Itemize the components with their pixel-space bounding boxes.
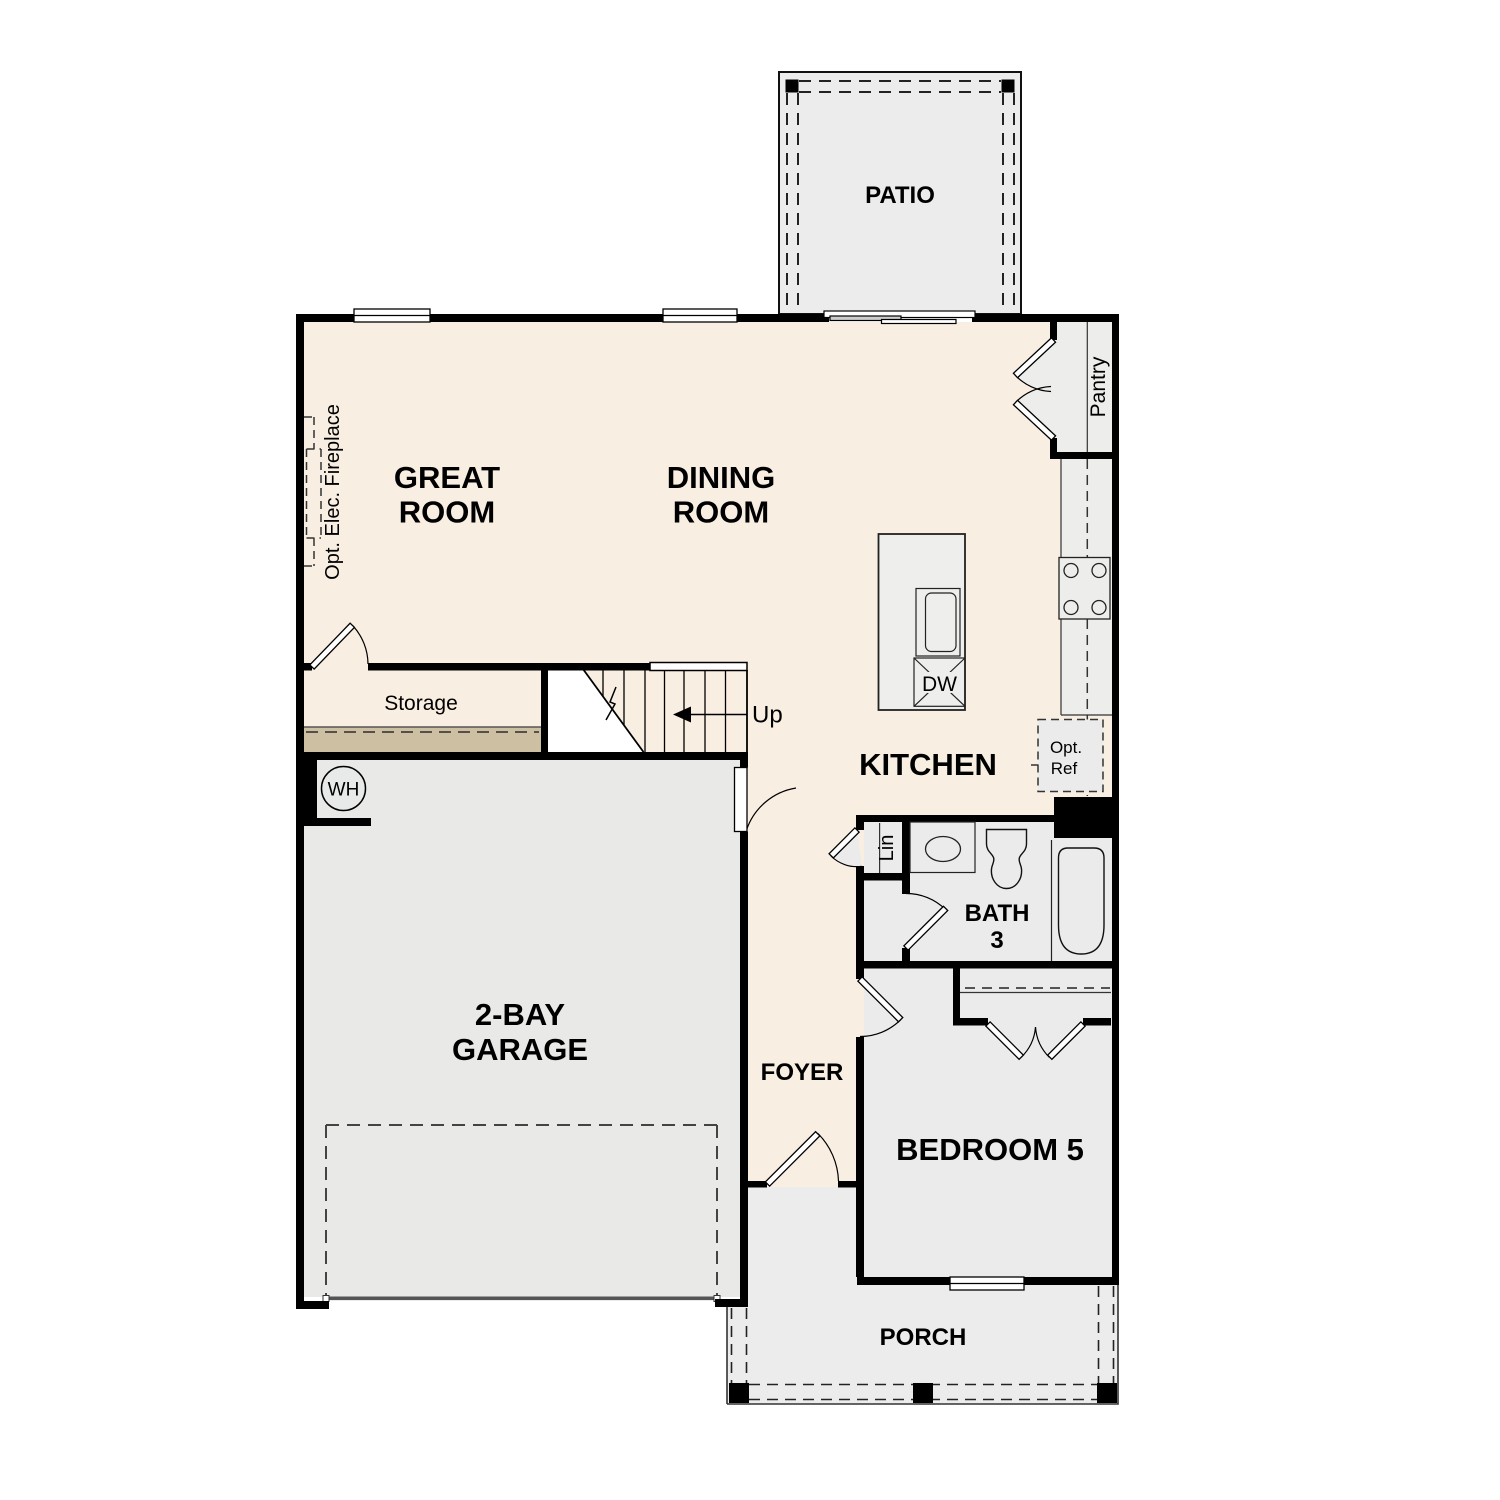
svg-text:Pantry: Pantry	[1087, 356, 1110, 417]
svg-text:Storage: Storage	[384, 692, 458, 715]
svg-text:DINING: DINING	[667, 460, 776, 495]
svg-text:GARAGE: GARAGE	[452, 1032, 588, 1067]
svg-text:Opt.: Opt.	[1050, 738, 1082, 757]
svg-text:FOYER: FOYER	[761, 1059, 844, 1086]
svg-text:3: 3	[990, 927, 1003, 954]
svg-text:Up: Up	[752, 702, 783, 729]
svg-text:PORCH: PORCH	[880, 1324, 967, 1351]
svg-text:BATH: BATH	[965, 900, 1030, 927]
svg-text:GREAT: GREAT	[394, 460, 500, 495]
svg-text:2-BAY: 2-BAY	[475, 997, 565, 1032]
svg-text:ROOM: ROOM	[399, 495, 495, 530]
svg-text:Opt. Elec. Fireplace: Opt. Elec. Fireplace	[322, 404, 344, 580]
svg-text:Lin: Lin	[876, 835, 898, 862]
svg-text:BEDROOM 5: BEDROOM 5	[896, 1132, 1084, 1167]
svg-text:DW: DW	[922, 673, 957, 696]
svg-text:WH: WH	[328, 780, 360, 801]
svg-text:PATIO: PATIO	[865, 182, 935, 209]
svg-text:ROOM: ROOM	[673, 495, 769, 530]
svg-text:KITCHEN: KITCHEN	[859, 747, 997, 782]
svg-text:Ref: Ref	[1051, 759, 1078, 778]
